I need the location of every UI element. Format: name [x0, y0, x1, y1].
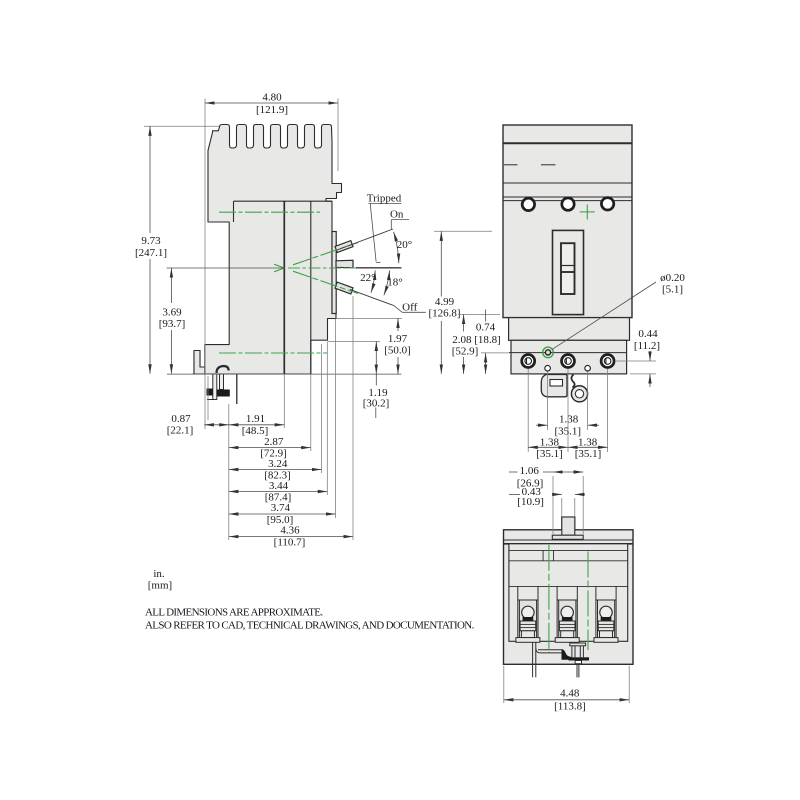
svg-text:3.44: 3.44 — [269, 480, 289, 492]
svg-text:0.87: 0.87 — [171, 413, 191, 425]
svg-text:[mm]: [mm] — [148, 580, 172, 592]
svg-text:[10.9]: [10.9] — [517, 496, 544, 508]
svg-text:On: On — [390, 209, 404, 221]
svg-text:in.: in. — [153, 568, 165, 580]
svg-text:4.36: 4.36 — [280, 525, 300, 537]
svg-text:[30.2]: [30.2] — [363, 398, 390, 410]
svg-text:Off: Off — [402, 301, 417, 313]
svg-text:1.38: 1.38 — [540, 437, 560, 449]
svg-text:9.73: 9.73 — [141, 235, 161, 247]
svg-text:[52.9]: [52.9] — [452, 346, 479, 358]
svg-text:18°: 18° — [387, 277, 402, 289]
svg-text:[35.1]: [35.1] — [555, 425, 582, 437]
svg-text:3.24: 3.24 — [268, 458, 288, 470]
svg-text:[247.1]: [247.1] — [135, 247, 167, 259]
svg-text:[50.0]: [50.0] — [384, 345, 411, 357]
svg-text:0.74: 0.74 — [476, 322, 496, 334]
svg-text:4.80: 4.80 — [262, 92, 282, 104]
svg-text:ALL DIMENSIONS ARE APPROXIMATE: ALL DIMENSIONS ARE APPROXIMATE. — [145, 607, 323, 619]
svg-text:ø0.20: ø0.20 — [660, 272, 685, 284]
svg-text:[22.1]: [22.1] — [167, 425, 194, 437]
svg-text:1.91: 1.91 — [246, 413, 265, 425]
svg-text:1.97: 1.97 — [388, 333, 408, 345]
svg-text:20°: 20° — [397, 239, 412, 251]
svg-text:[11.2]: [11.2] — [634, 340, 660, 352]
svg-text:[35.1]: [35.1] — [536, 448, 563, 460]
svg-text:22°: 22° — [360, 272, 375, 284]
svg-text:1.38: 1.38 — [578, 437, 598, 449]
svg-text:1.38: 1.38 — [559, 413, 579, 425]
svg-text:[121.9]: [121.9] — [256, 104, 288, 116]
svg-text:Tripped: Tripped — [367, 193, 402, 205]
svg-text:4.99: 4.99 — [435, 296, 455, 308]
svg-text:3.69: 3.69 — [162, 307, 182, 319]
svg-text:4.48: 4.48 — [560, 688, 580, 700]
svg-text:[93.7]: [93.7] — [159, 318, 186, 330]
svg-text:2.08 [18.8]: 2.08 [18.8] — [452, 334, 501, 346]
svg-text:[110.7]: [110.7] — [274, 537, 306, 549]
svg-text:ALSO REFER TO CAD, TECHNICAL D: ALSO REFER TO CAD, TECHNICAL DRAWINGS, A… — [145, 620, 475, 632]
svg-text:[113.8]: [113.8] — [554, 700, 586, 712]
svg-text:1.06: 1.06 — [520, 465, 540, 477]
svg-text:[5.1]: [5.1] — [662, 284, 683, 296]
svg-text:[126.8]: [126.8] — [428, 308, 460, 320]
svg-text:[35.1]: [35.1] — [575, 448, 602, 460]
svg-text:0.44: 0.44 — [638, 328, 658, 340]
svg-text:2.87: 2.87 — [264, 436, 284, 448]
svg-text:3.74: 3.74 — [271, 502, 291, 514]
